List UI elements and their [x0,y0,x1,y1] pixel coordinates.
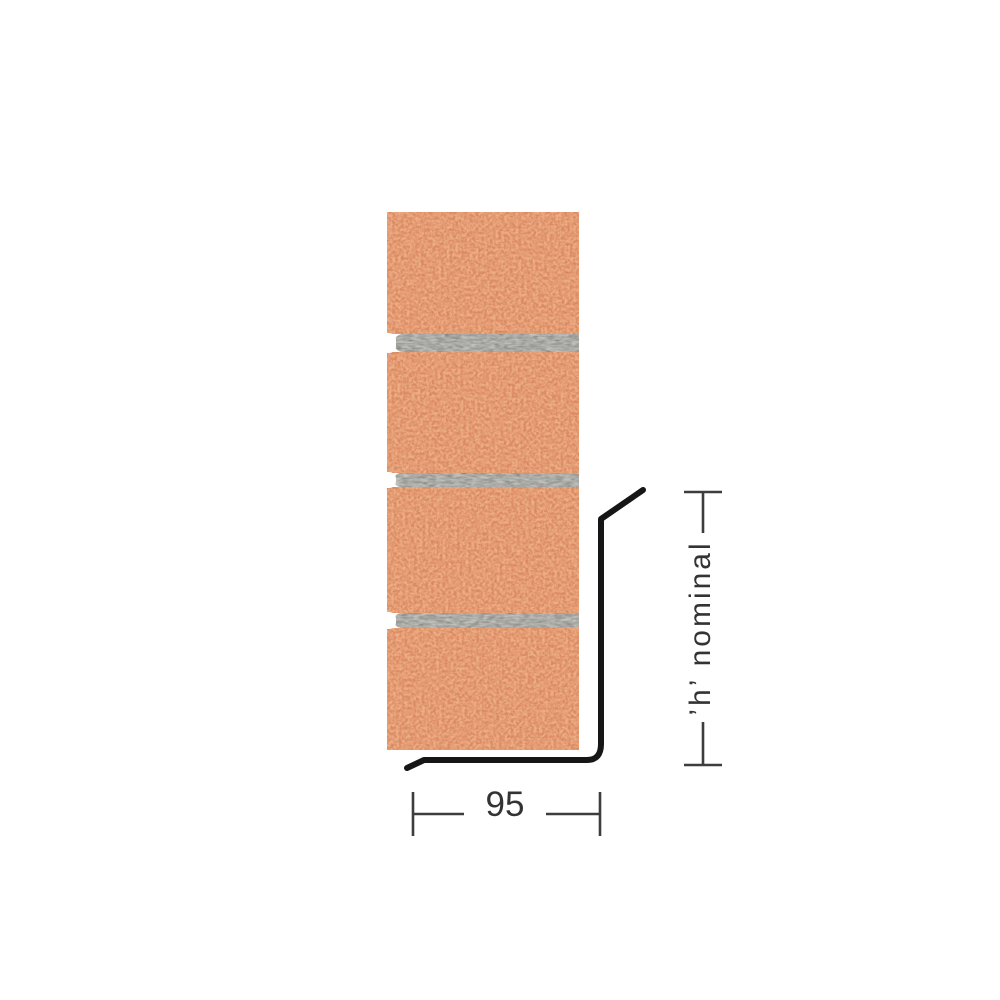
height-dimension-label: ’h’ nominal [686,540,716,715]
lintel-angle-line [407,490,643,768]
diagram-linework [0,0,1000,1000]
width-dimension-label: 95 [467,787,543,823]
diagram-canvas: 95 ’h’ nominal [0,0,1000,1000]
